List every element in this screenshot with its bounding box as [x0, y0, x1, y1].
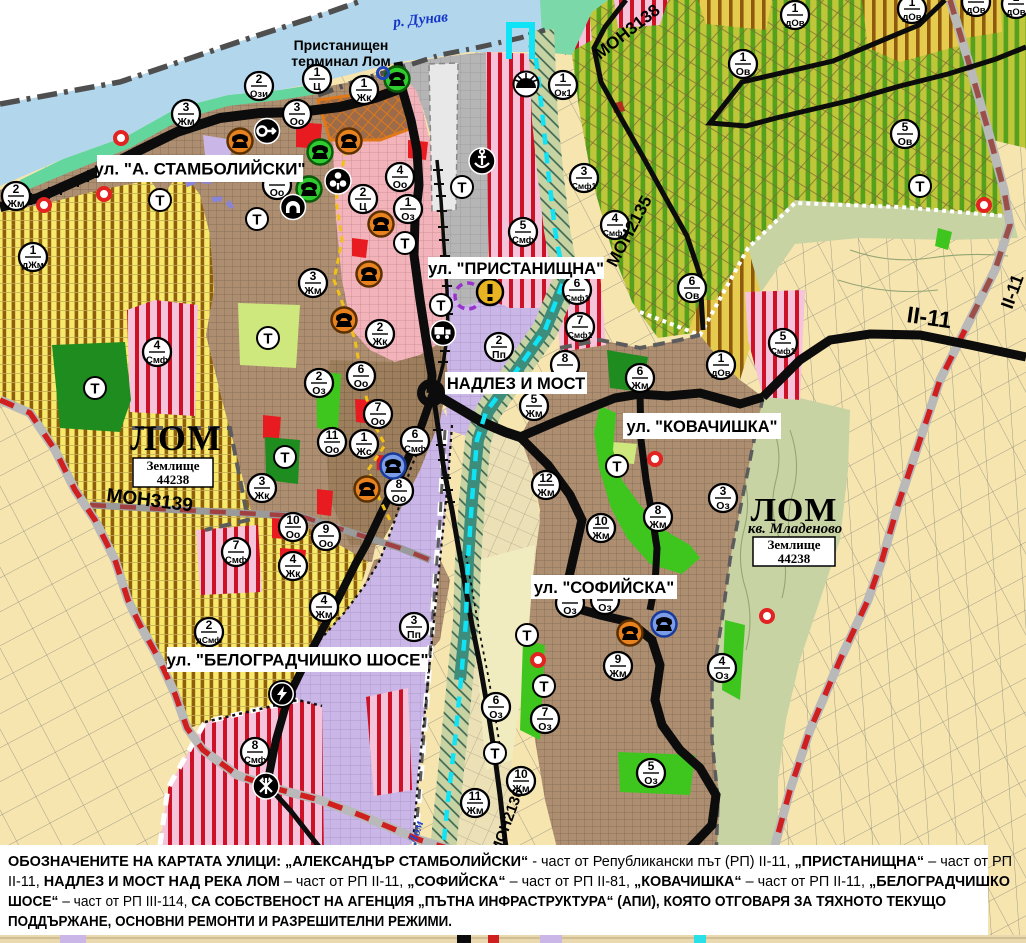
svg-text:Ов: Ов [898, 136, 913, 148]
svg-text:T: T [252, 212, 261, 229]
svg-text:Жк: Жк [372, 336, 388, 348]
svg-text:2: 2 [496, 333, 503, 347]
svg-text:Жм: Жм [608, 668, 626, 680]
svg-text:ул. "БЕЛОГРАДЧИШКО ШОСЕ": ул. "БЕЛОГРАДЧИШКО ШОСЕ" [166, 651, 428, 670]
svg-text:Оо: Оо [393, 179, 408, 191]
svg-text:1: 1 [909, 0, 916, 9]
svg-text:Жс: Жс [355, 446, 371, 458]
svg-text:Жм: Жм [303, 285, 321, 297]
svg-text:5: 5 [902, 120, 909, 134]
svg-text:ОБОЗНАЧЕНИТЕ НА КАРТАТА УЛИЦИ:: ОБОЗНАЧЕНИТЕ НА КАРТАТА УЛИЦИ: „АЛЕКСАНД… [8, 852, 1012, 870]
svg-text:11: 11 [326, 428, 339, 442]
svg-text:ул. "ПРИСТАНИЩНА": ул. "ПРИСТАНИЩНА" [428, 260, 604, 278]
svg-text:2: 2 [13, 182, 20, 196]
svg-text:Ок1: Ок1 [554, 88, 572, 99]
svg-text:7: 7 [577, 313, 584, 327]
svg-text:терминал Лом: терминал Лом [291, 53, 391, 69]
svg-text:Жм: Жм [465, 805, 483, 817]
svg-text:Жк: Жк [285, 568, 301, 580]
svg-text:Оз: Оз [312, 385, 325, 397]
svg-text:Оз: Оз [489, 709, 502, 721]
svg-text:5: 5 [531, 392, 538, 406]
svg-text:Ов: Ов [685, 290, 700, 302]
svg-text:1: 1 [792, 1, 799, 15]
svg-text:4: 4 [719, 654, 726, 668]
svg-text:Землище: Землище [146, 458, 199, 473]
svg-text:6: 6 [689, 274, 696, 288]
svg-text:Смф: Смф [404, 444, 426, 455]
svg-text:T: T [522, 628, 531, 645]
svg-text:10: 10 [594, 514, 608, 528]
svg-text:II-11, НАДЛЕЗ И МОСТ НАД РЕКА: II-11, НАДЛЕЗ И МОСТ НАД РЕКА ЛОМ – част… [8, 872, 1010, 890]
svg-text:Смф: Смф [146, 355, 168, 366]
svg-text:Жм: Жм [176, 116, 194, 128]
svg-text:9: 9 [323, 522, 330, 536]
svg-text:Жм: Жм [524, 408, 542, 420]
svg-text:Смф: Смф [225, 555, 247, 566]
svg-text:дОв: дОв [902, 12, 921, 23]
svg-text:ул. "А. СТАМБОЛИЙСКИ": ул. "А. СТАМБОЛИЙСКИ" [94, 160, 305, 179]
svg-text:ШОСЕ“ – част от РП III-114, СА: ШОСЕ“ – част от РП III-114, СА СОБСТВЕНО… [8, 894, 946, 910]
svg-text:2: 2 [360, 185, 367, 199]
svg-text:Жм: Жм [630, 380, 648, 392]
svg-text:Оз: Оз [401, 211, 414, 223]
svg-text:ул. "СОФИЙСКА": ул. "СОФИЙСКА" [534, 578, 674, 597]
svg-text:Ц: Ц [313, 81, 321, 93]
svg-text:Ц: Ц [359, 201, 367, 213]
svg-text:1: 1 [405, 195, 412, 209]
svg-text:Оз: Оз [644, 775, 657, 787]
svg-text:Ози: Ози [250, 89, 268, 100]
svg-text:Пп: Пп [492, 349, 506, 361]
svg-text:4: 4 [397, 163, 404, 177]
svg-text:4: 4 [154, 338, 161, 352]
svg-text:1: 1 [560, 71, 567, 85]
svg-text:Оз: Оз [715, 670, 728, 682]
svg-text:1: 1 [973, 0, 980, 2]
svg-text:дОв: дОв [1006, 7, 1025, 18]
svg-text:Оо: Оо [325, 444, 340, 456]
svg-text:Смф: Смф [512, 235, 534, 246]
svg-text:ПОДДЪРЖАНЕ, ОСНОВНИ РЕМОНТИ И: ПОДДЪРЖАНЕ, ОСНОВНИ РЕМОНТИ И РАЗРЕШИТЕЛ… [8, 914, 452, 930]
svg-text:ул. "КОВАЧИШКА": ул. "КОВАЧИШКА" [627, 418, 778, 436]
svg-text:5: 5 [648, 759, 655, 773]
svg-text:T: T [612, 459, 621, 476]
svg-text:T: T [915, 179, 924, 196]
svg-text:Жк: Жк [356, 92, 372, 104]
svg-text:Смф1: Смф1 [565, 293, 590, 303]
svg-text:1: 1 [740, 50, 747, 64]
svg-text:1: 1 [1013, 0, 1020, 4]
svg-text:T: T [539, 679, 548, 696]
svg-text:дЖм: дЖм [22, 260, 44, 271]
svg-text:Оо: Оо [270, 187, 285, 199]
svg-text:ЛОМ: ЛОМ [130, 418, 222, 458]
svg-text:Смф1: Смф1 [568, 330, 593, 340]
svg-text:6: 6 [358, 362, 365, 376]
svg-text:Землище: Землище [767, 537, 820, 552]
svg-text:Жм: Жм [591, 530, 609, 542]
svg-text:44238: 44238 [157, 472, 190, 487]
svg-text:T: T [436, 298, 445, 315]
svg-text:Оз: Оз [538, 721, 551, 733]
svg-text:4: 4 [321, 593, 328, 607]
svg-text:Смф1: Смф1 [572, 181, 597, 191]
svg-text:3: 3 [310, 269, 317, 283]
svg-text:Оо: Оо [354, 378, 369, 390]
svg-text:дСмф: дСмф [196, 635, 222, 645]
svg-text:НАДЛЕЗ И МОСТ: НАДЛЕЗ И МОСТ [447, 375, 585, 393]
svg-text:8: 8 [655, 503, 662, 517]
svg-text:Жм: Жм [648, 519, 666, 531]
svg-text:7: 7 [542, 705, 549, 719]
svg-text:3: 3 [411, 613, 418, 627]
svg-text:3: 3 [581, 164, 588, 178]
svg-text:10: 10 [286, 513, 300, 527]
svg-text:5: 5 [780, 329, 787, 343]
svg-text:12: 12 [539, 471, 553, 485]
svg-text:4: 4 [290, 552, 297, 566]
svg-text:Смф1: Смф1 [771, 346, 796, 356]
svg-text:Пристанищен: Пристанищен [294, 37, 389, 53]
svg-text:1: 1 [361, 430, 368, 444]
svg-text:Оо: Оо [371, 416, 386, 428]
svg-text:Оо: Оо [286, 529, 301, 541]
svg-text:6: 6 [412, 427, 419, 441]
svg-text:8: 8 [252, 738, 259, 752]
svg-text:Смф: Смф [244, 755, 266, 766]
svg-text:Оо: Оо [319, 538, 334, 550]
svg-text:дОв: дОв [785, 18, 804, 29]
svg-text:дОв: дОв [711, 368, 730, 379]
svg-text:T: T [263, 331, 272, 348]
svg-text:2: 2 [256, 72, 263, 86]
svg-text:6: 6 [637, 364, 644, 378]
svg-text:3: 3 [183, 100, 190, 114]
svg-text:дОв: дОв [966, 5, 985, 16]
svg-text:Жм: Жм [536, 487, 554, 499]
svg-text:T: T [280, 450, 289, 467]
svg-text:11: 11 [469, 789, 482, 803]
svg-text:1: 1 [718, 351, 725, 365]
svg-text:Оз: Оз [598, 602, 611, 614]
svg-text:7: 7 [233, 538, 240, 552]
svg-text:3: 3 [259, 474, 266, 488]
svg-text:T: T [400, 236, 409, 253]
svg-text:2: 2 [316, 369, 323, 383]
svg-text:T: T [90, 381, 99, 398]
svg-text:Пп: Пп [407, 629, 421, 641]
svg-text:3: 3 [294, 100, 301, 114]
svg-text:2: 2 [206, 618, 213, 632]
svg-text:Жм: Жм [314, 609, 332, 621]
svg-text:10: 10 [514, 767, 528, 781]
svg-text:1: 1 [30, 243, 37, 257]
svg-text:4: 4 [612, 211, 619, 225]
svg-text:1: 1 [361, 76, 368, 90]
svg-text:2: 2 [377, 320, 384, 334]
svg-text:Оз: Оз [716, 500, 729, 512]
svg-text:6: 6 [493, 693, 500, 707]
svg-text:7: 7 [375, 400, 382, 414]
svg-text:Оз: Оз [563, 605, 576, 617]
svg-text:44238: 44238 [778, 551, 811, 566]
svg-text:Оо: Оо [392, 493, 407, 505]
svg-text:9: 9 [615, 652, 622, 666]
svg-text:Жм: Жм [6, 198, 24, 210]
svg-text:8: 8 [562, 351, 569, 365]
svg-text:кв. Младеново: кв. Младеново [748, 521, 842, 537]
svg-text:3: 3 [720, 484, 727, 498]
svg-text:Оо: Оо [290, 116, 305, 128]
svg-text:Ов: Ов [736, 66, 751, 78]
svg-text:Жк: Жк [254, 490, 270, 502]
svg-text:T: T [490, 746, 499, 763]
svg-text:T: T [155, 193, 164, 210]
svg-text:5: 5 [520, 218, 527, 232]
svg-text:T: T [457, 180, 466, 197]
